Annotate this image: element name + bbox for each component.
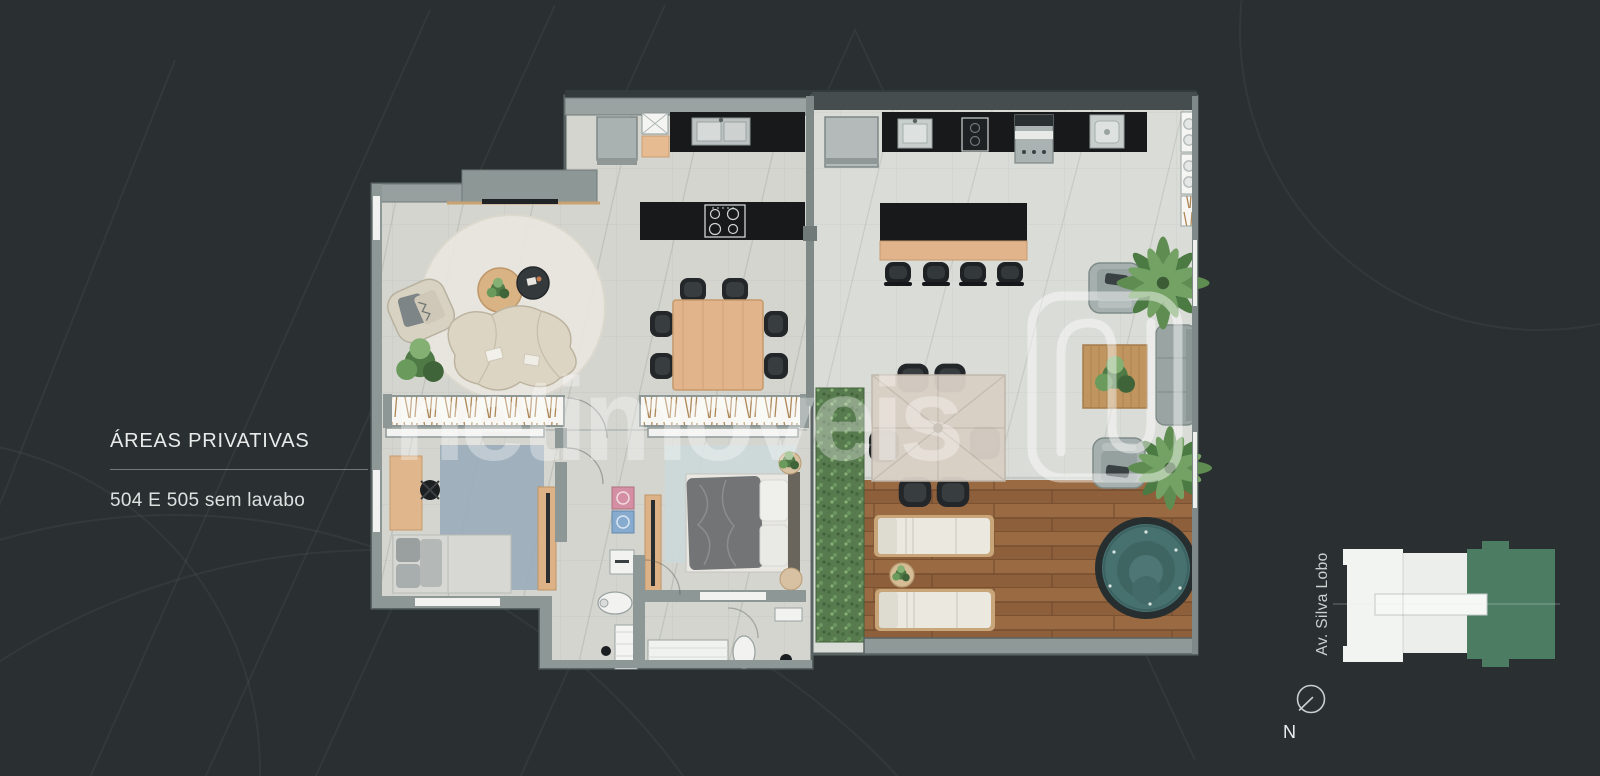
compass-label: N [1283, 722, 1296, 742]
building-footprint [1333, 541, 1560, 667]
sun-lounger [874, 515, 994, 557]
laundry-icon [612, 511, 634, 533]
bed [686, 472, 800, 574]
sun-lounger [875, 589, 995, 631]
site-map: Av. Silva Lobo N [1283, 541, 1560, 742]
page-subtitle: 504 E 505 sem lavabo [110, 490, 410, 512]
island [880, 203, 1027, 241]
grill [1015, 115, 1053, 163]
divider [110, 469, 368, 470]
street-label: Av. Silva Lobo [1314, 552, 1331, 655]
compass-north-icon [1298, 686, 1325, 713]
laundry-icon [612, 487, 634, 509]
scene-svg: netimoveis Av. Silva Lobo [0, 0, 1600, 776]
page-title: ÁREAS PRIVATIVAS [110, 430, 410, 453]
sink-vanity [775, 608, 802, 621]
presentation-canvas: netimoveis Av. Silva Lobo [0, 0, 1600, 776]
bed [393, 535, 511, 593]
jacuzzi [1095, 517, 1197, 619]
watermark-text: netimoveis [393, 354, 960, 486]
refrigerator [597, 117, 637, 160]
building-highlight [1482, 541, 1509, 550]
caption-block: ÁREAS PRIVATIVAS 504 E 505 sem lavabo [110, 430, 410, 512]
island-wood [880, 241, 1027, 260]
nightstand [780, 568, 802, 590]
